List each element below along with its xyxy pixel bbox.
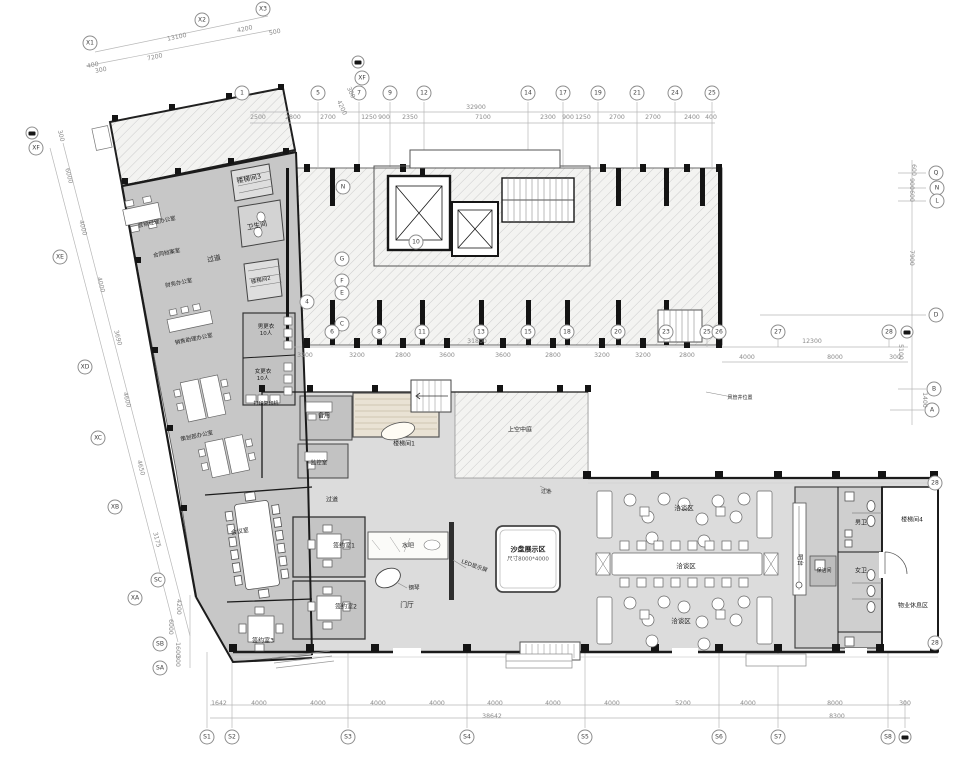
room-label: 楼梯间1 [393,440,415,448]
grid-bubble-E: E [335,286,350,301]
room-label: 女卫 [855,567,867,575]
dimension-label: 7100 [475,115,491,121]
dimension-label: 5200 [675,701,691,707]
dimension-label: 900 [908,178,914,190]
grid-bubble-19: 19 [591,86,606,101]
grid-bubble-SC: SC [151,573,166,588]
dimension-label: 4000 [251,701,267,707]
grid-bubble-23: 23 [659,325,674,340]
grid-bubble-27: 27 [771,325,786,340]
dimension-label: 4000 [429,701,445,707]
dimension-label: 32900 [466,105,486,111]
grid-bubble-14: 14 [521,86,536,101]
dimension-label: 2400 [684,115,700,121]
grid-bubble-XA: XA [128,591,143,606]
dimension-label: 3175 [151,532,161,549]
dimension-label: 300 [899,701,911,707]
grid-bubble-17: 17 [556,86,571,101]
room-label: 女更衣 10人 [255,369,272,383]
grid-bubble-8: 8 [372,325,387,340]
room-label: 监控室 [311,461,328,468]
sandbox-area-label: 沙盘展示区 [511,546,546,555]
dimension-label: 4000 [739,355,755,361]
dimension-label: 1400 [921,392,927,408]
dimension-label: 500 [269,29,282,38]
grid-bubble-XE: XE [53,250,68,265]
grid-bubble-XF: XF [355,71,370,86]
room-label: 楼梯间4 [901,516,923,524]
dimension-label: 12300 [802,339,822,345]
room-label: 签约室2 [335,603,357,611]
grid-bubble-marker [899,731,912,744]
grid-bubble-S8: S8 [881,730,896,745]
dimension-label: 3200 [349,353,365,359]
dimension-label: 13100 [167,33,188,43]
room-label: 过道 [326,496,338,504]
grid-bubble-marker [26,127,39,140]
dimension-label: 38642 [482,714,502,720]
dimension-label: 400 [705,115,717,121]
grid-bubble-12: 12 [417,86,432,101]
room-label: 营销经理办公室 [137,216,176,231]
grid-bubble-L: L [930,194,945,209]
dimension-label: 1250 [575,115,591,121]
dimension-label: 2500 [250,115,266,121]
grid-bubble-5: 5 [311,86,326,101]
dimension-label: 1642 [211,701,227,707]
grid-bubble-28: 28 [928,476,943,491]
grid-bubble-S6: S6 [712,730,727,745]
room-label: 合同档案室 [153,248,181,260]
grid-bubble-S4: S4 [460,730,475,745]
grid-bubble-21: 21 [630,86,645,101]
dimension-label: 600 [908,190,914,202]
dimension-label: 4000 [740,701,756,707]
grid-bubble-XD: XD [78,360,93,375]
dimension-label: 6000 [63,168,73,185]
room-label: 上空中庭 [508,426,532,434]
grid-bubble-S2: S2 [225,730,240,745]
grid-bubble-XB: XB [108,500,123,515]
room-label: 签约室1 [333,542,355,550]
room-label: 会议室 [230,527,249,538]
grid-bubble-Q: Q [929,166,944,181]
grid-bubble-SB: SB [153,637,168,652]
dimension-label: 8000 [827,701,843,707]
grid-bubble-N: N [336,180,351,195]
lobby-label: 门厅 [400,601,414,609]
room-label: 吧台 [795,554,803,566]
dimension-label: 300 [56,130,65,143]
room-label: 过道 [206,253,221,264]
room-label: 过道 [541,489,551,495]
dimension-label: 2800 [285,115,301,121]
grid-bubble-G: G [335,252,350,267]
dimension-label: 4650 [135,460,145,477]
grid-bubble-15: 15 [521,325,536,340]
annotation-overlay: 沙盘展示区 尺寸8000*4000 门厅 X1X2X3XF15791214171… [0,0,972,775]
grid-bubble-11: 11 [415,325,430,340]
grid-bubble-S1: S1 [200,730,215,745]
grid-bubble-S5: S5 [578,730,593,745]
grid-bubble-10: 10 [409,235,424,250]
room-label: 楼梯间2 [251,276,272,287]
grid-bubble-24: 24 [668,86,683,101]
dimension-label: 7200 [147,53,164,62]
grid-bubble-25: 25 [705,86,720,101]
dimension-label: 600 [910,164,916,176]
dimension-label: 2800 [679,353,695,359]
dimension-label: 300 [174,655,180,667]
dimension-label: 3200 [297,353,313,359]
dimension-label: 4000 [604,701,620,707]
grid-bubble-XC: XC [91,431,106,446]
room-label: 男更衣 10人 [258,324,275,338]
dimension-label: 2350 [402,115,418,121]
grid-bubble-28: 28 [928,636,943,651]
dimension-label: 4200 [237,25,254,34]
sandbox-size-label: 尺寸8000*4000 [507,557,549,564]
grid-bubble-18: 18 [560,325,575,340]
dimension-label: 2700 [645,115,661,121]
room-label: LED显示屏 [460,559,488,575]
room-label: 钢琴 [408,586,419,593]
dimension-label: 1250 [361,115,377,121]
dimension-label: 2700 [320,115,336,121]
dimension-label: 900 [378,115,390,121]
grid-bubble-S7: S7 [771,730,786,745]
dimension-label: 4000 [487,701,503,707]
dimension-label: 2300 [540,115,556,121]
room-label: 策划部办公室 [180,430,214,444]
room-label: 楼梯间3 [236,172,262,185]
room-label: 财务办公室 [165,278,193,290]
dimension-label: 3690 [112,330,122,347]
room-label: 洽谈区 [671,617,691,625]
room-label: 卫生间 [246,220,268,233]
dimension-label: 4000 [77,220,87,237]
grid-bubble-1: 1 [235,86,250,101]
room-label: 男卫 [855,519,867,527]
dimension-label: 4000 [370,701,386,707]
dimension-label: 2800 [545,353,561,359]
grid-bubble-6: 6 [325,325,340,340]
floorplan-canvas: 沙盘展示区 尺寸8000*4000 门厅 X1X2X3XF15791214171… [0,0,972,775]
room-label: 签约室3 [252,637,274,645]
dimension-label: 31800 [467,339,487,345]
dimension-label: 6000 [167,619,173,635]
grid-bubble-D: D [929,308,944,323]
room-label: 风管井位置 [727,395,752,401]
dimension-label: 3200 [594,353,610,359]
room-label: 洽谈区 [674,504,694,512]
dimension-label: 2700 [609,115,625,121]
dimension-label: 4000 [545,701,561,707]
grid-bubble-20: 20 [611,325,626,340]
dimension-label: 8300 [829,714,845,720]
room-label: 打印复印机 [253,401,278,407]
dimension-label: 300 [95,67,108,76]
grid-bubble-X1: X1 [83,36,98,51]
room-label: 销售助理办公室 [174,333,213,348]
grid-bubble-XF: XF [29,141,44,156]
grid-bubble-marker [901,326,914,339]
room-label: 备用 [318,412,330,420]
grid-bubble-9: 9 [383,86,398,101]
dimension-label: 900 [562,115,574,121]
grid-bubble-28: 28 [882,325,897,340]
dimension-label: 2800 [395,353,411,359]
dimension-label: 4000 [95,277,105,294]
dimension-label: 7900 [908,250,914,266]
grid-bubble-B: B [927,382,942,397]
dimension-label: 3600 [495,353,511,359]
dimension-label: 8000 [827,355,843,361]
room-label: 水吧 [402,542,414,550]
grid-bubble-SA: SA [153,661,168,676]
grid-bubble-X2: X2 [195,13,210,28]
room-label: 物业休息区 [898,602,928,610]
room-label: 保洁间 [816,568,831,574]
dimension-label: 5100 [897,344,903,360]
dimension-label: 4000 [310,701,326,707]
grid-bubble-4: 4 [300,295,315,310]
dimension-label: 3200 [635,353,651,359]
dimension-label: 4600 [121,392,131,409]
dimension-label: 4200 [335,100,347,117]
dimension-label: 3600 [439,353,455,359]
grid-bubble-26: 26 [712,325,727,340]
grid-bubble-marker [352,56,365,69]
grid-bubble-X3: X3 [256,2,271,17]
room-label: 洽谈区 [676,562,696,570]
grid-bubble-S3: S3 [341,730,356,745]
dimension-label: 4200 [175,599,181,615]
